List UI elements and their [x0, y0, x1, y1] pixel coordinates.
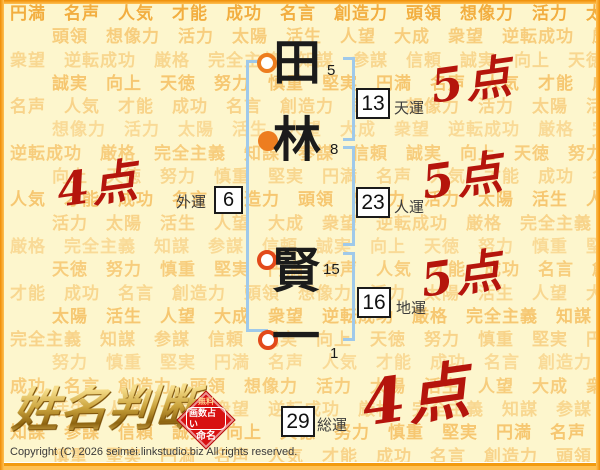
frame-border-bottom	[0, 462, 600, 470]
name-char-1: 田	[273, 40, 321, 88]
tenun-bracket-bottom-tick	[343, 138, 352, 141]
name-char-3: 賢	[272, 248, 320, 296]
name-char-3-strokes: 15	[323, 261, 340, 278]
gaiun-label: 外運	[176, 191, 206, 212]
chiun-value-box: 16	[357, 287, 391, 318]
gaiun-score: 4点	[54, 157, 142, 214]
stamp-line-1: 無料	[198, 398, 214, 406]
copyright-text: Copyright (C) 2026 seimei.linkstudio.biz…	[10, 446, 297, 458]
jinun-score: 5点	[419, 149, 507, 206]
soun-label: 総運	[317, 414, 347, 435]
chiun-bracket-bottom-tick	[343, 338, 352, 341]
soun-value-box: 29	[281, 406, 315, 437]
name-char-4: 一	[272, 314, 320, 362]
gaiun-bracket	[246, 60, 249, 332]
name-char-4-strokes: 1	[330, 345, 338, 362]
site-logo[interactable]: 姓名判断	[10, 382, 207, 437]
jinun-value-box: 23	[356, 187, 390, 218]
stamp-line-2: 画数占い	[186, 407, 226, 431]
chiun-bracket-top-tick	[343, 252, 352, 255]
name-char-2: 林	[273, 117, 321, 165]
chiun-label: 地運	[396, 297, 426, 318]
jinun-bracket-bottom-tick	[343, 243, 352, 246]
tenun-bracket	[352, 57, 355, 141]
stamp-text: 無料 画数占い 命名	[186, 400, 226, 440]
jinun-bracket-top-tick	[343, 146, 352, 149]
free-naming-stamp-badge[interactable]: 無料 画数占い 命名	[178, 392, 235, 449]
frame-border-right	[596, 0, 600, 470]
name-char-2-strokes: 8	[330, 141, 338, 158]
frame-border-left	[0, 0, 4, 470]
chiun-score: 5点	[418, 247, 506, 304]
tenun-bracket-top-tick	[343, 57, 352, 60]
tenun-score: 5点	[428, 53, 516, 110]
tenun-label: 天運	[394, 97, 424, 118]
tenun-value-box: 13	[356, 88, 390, 119]
jinun-bracket	[352, 146, 355, 246]
soun-score: 4点	[358, 359, 475, 436]
jinun-label: 人運	[394, 196, 424, 217]
chiun-bracket	[352, 252, 355, 341]
gaiun-value-box: 6	[214, 186, 243, 214]
name-char-1-strokes: 5	[327, 62, 335, 79]
stamp-line-3: 命名	[196, 431, 216, 442]
frame-border-top	[0, 0, 600, 4]
seimei-result-page: 円満 名声 人気 才能 成功 名言 創造力 頭領 想像力 活力 太陽 活生頭領 …	[0, 0, 600, 470]
